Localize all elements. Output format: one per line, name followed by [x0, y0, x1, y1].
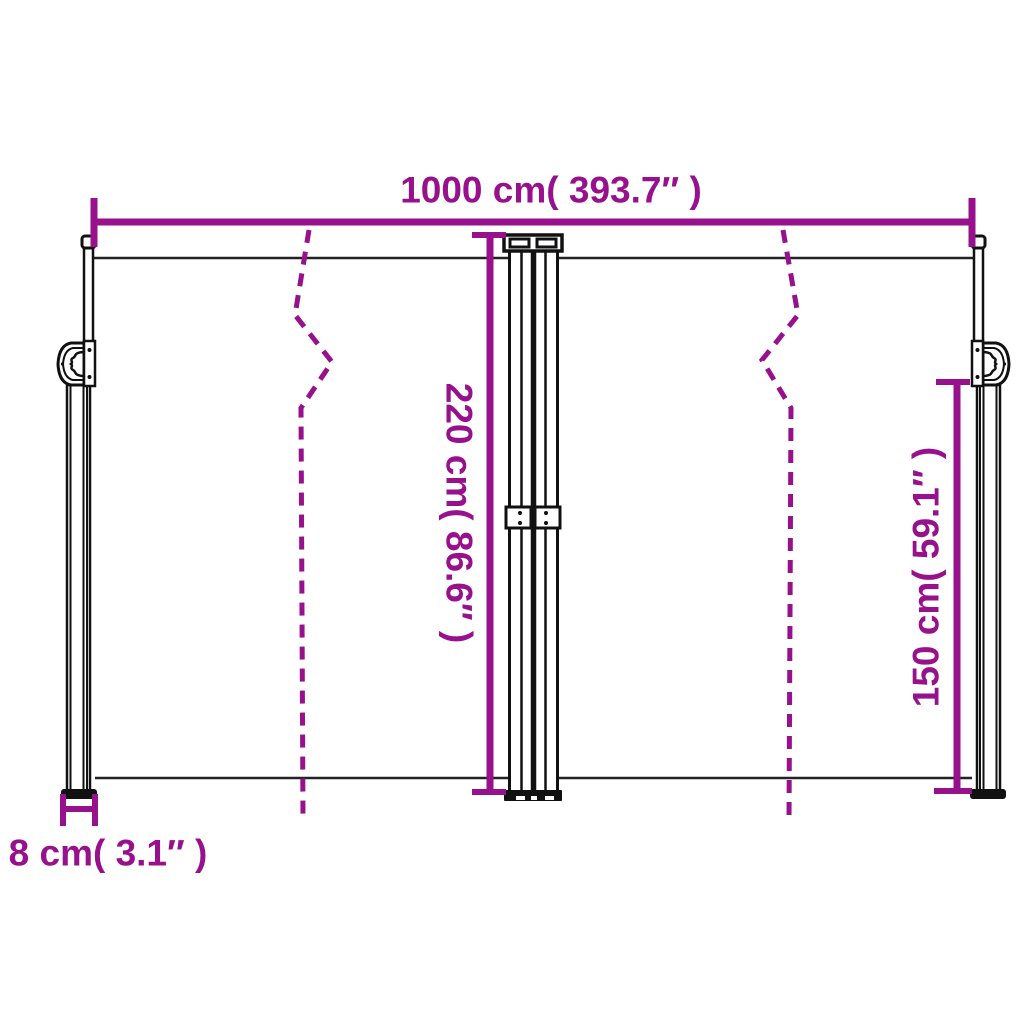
right-handle-screw: [976, 348, 980, 352]
diagram-canvas: 1000 cm( 393.7″ ) 220 cm( 86.6″ ) 150 cm…: [0, 0, 1024, 1024]
cassette-top-roll-right: [537, 239, 556, 247]
center-cassette-post: [504, 235, 562, 801]
bracket-screw: [518, 511, 522, 515]
cassette-bottom-notch: [545, 796, 554, 800]
total-height-label: 220 cm( 86.6″ ): [439, 383, 480, 643]
left-handle-plate: [84, 341, 95, 386]
cassette-top-roll-left: [510, 239, 529, 247]
cassette-bottom-notch: [531, 796, 537, 800]
left-post-upper-pole: [84, 246, 93, 347]
cassette-mid-bracket-right: [535, 507, 560, 528]
left-handle-dot: [61, 362, 64, 365]
left-post: [58, 236, 97, 799]
left-handle-screw: [88, 375, 92, 379]
left-handle-screw: [88, 348, 92, 352]
bracket-screw: [544, 511, 548, 515]
cassette-bottom-notch: [516, 796, 525, 800]
right-handle-dot: [1003, 362, 1006, 365]
extension-dashed-line-right: [762, 230, 798, 820]
bracket-screw: [518, 521, 522, 525]
right-handle-screw: [976, 375, 980, 379]
side-height-label: 150 cm( 59.1″ ): [906, 447, 947, 707]
post-depth-label: 8 cm( 3.1″ ): [9, 833, 208, 874]
left-post-base: [61, 789, 97, 799]
right-post-base: [970, 789, 1006, 799]
right-post: [970, 236, 1009, 799]
total-height-dimension: 220 cm( 86.6″ ): [439, 235, 507, 792]
total-width-label: 1000 cm( 393.7″ ): [400, 170, 702, 211]
cassette-mid-bracket-left: [506, 507, 531, 528]
bracket-screw: [544, 521, 548, 525]
side-height-dimension: 150 cm( 59.1″ ): [906, 382, 973, 791]
awning-dimension-diagram: 1000 cm( 393.7″ ) 220 cm( 86.6″ ) 150 cm…: [0, 0, 1024, 1024]
extension-dashed-line-left: [295, 230, 332, 820]
right-post-upper-pole: [974, 246, 983, 347]
post-depth-dimension: 8 cm( 3.1″ ): [9, 794, 208, 874]
right-handle-plate: [972, 341, 983, 386]
awning-frame: [58, 235, 1009, 801]
